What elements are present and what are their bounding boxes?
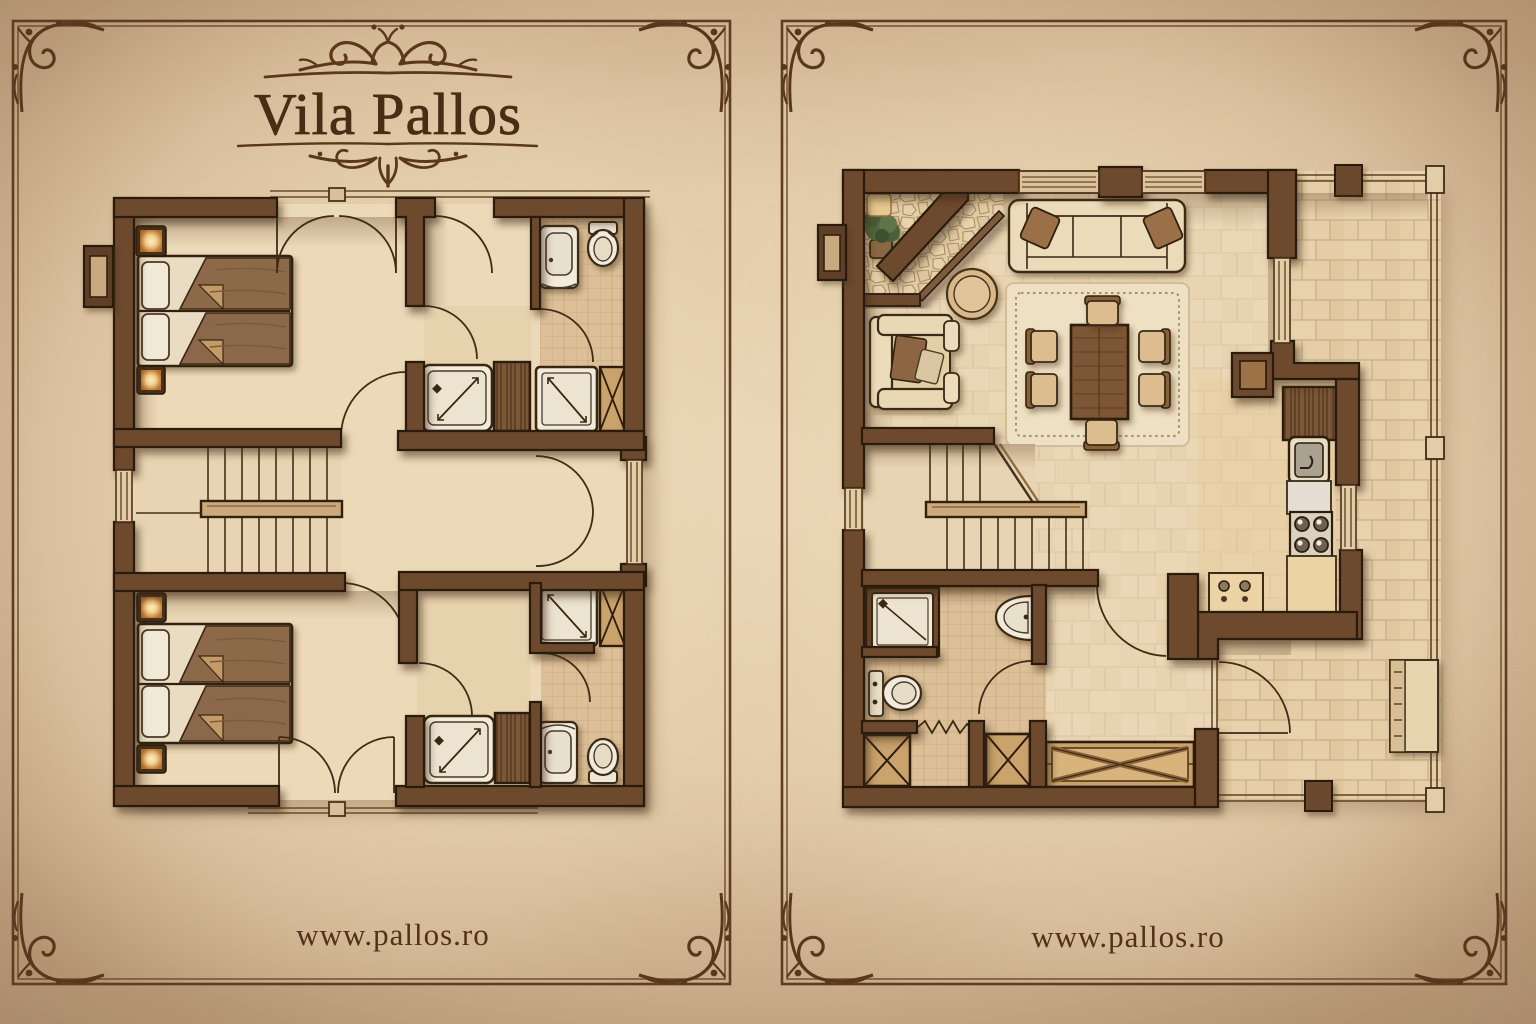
- svg-text:www.pallos.ro: www.pallos.ro: [296, 917, 490, 952]
- svg-text:www.pallos.ro: www.pallos.ro: [1031, 919, 1225, 954]
- svg-text:Vila Pallos: Vila Pallos: [254, 81, 522, 147]
